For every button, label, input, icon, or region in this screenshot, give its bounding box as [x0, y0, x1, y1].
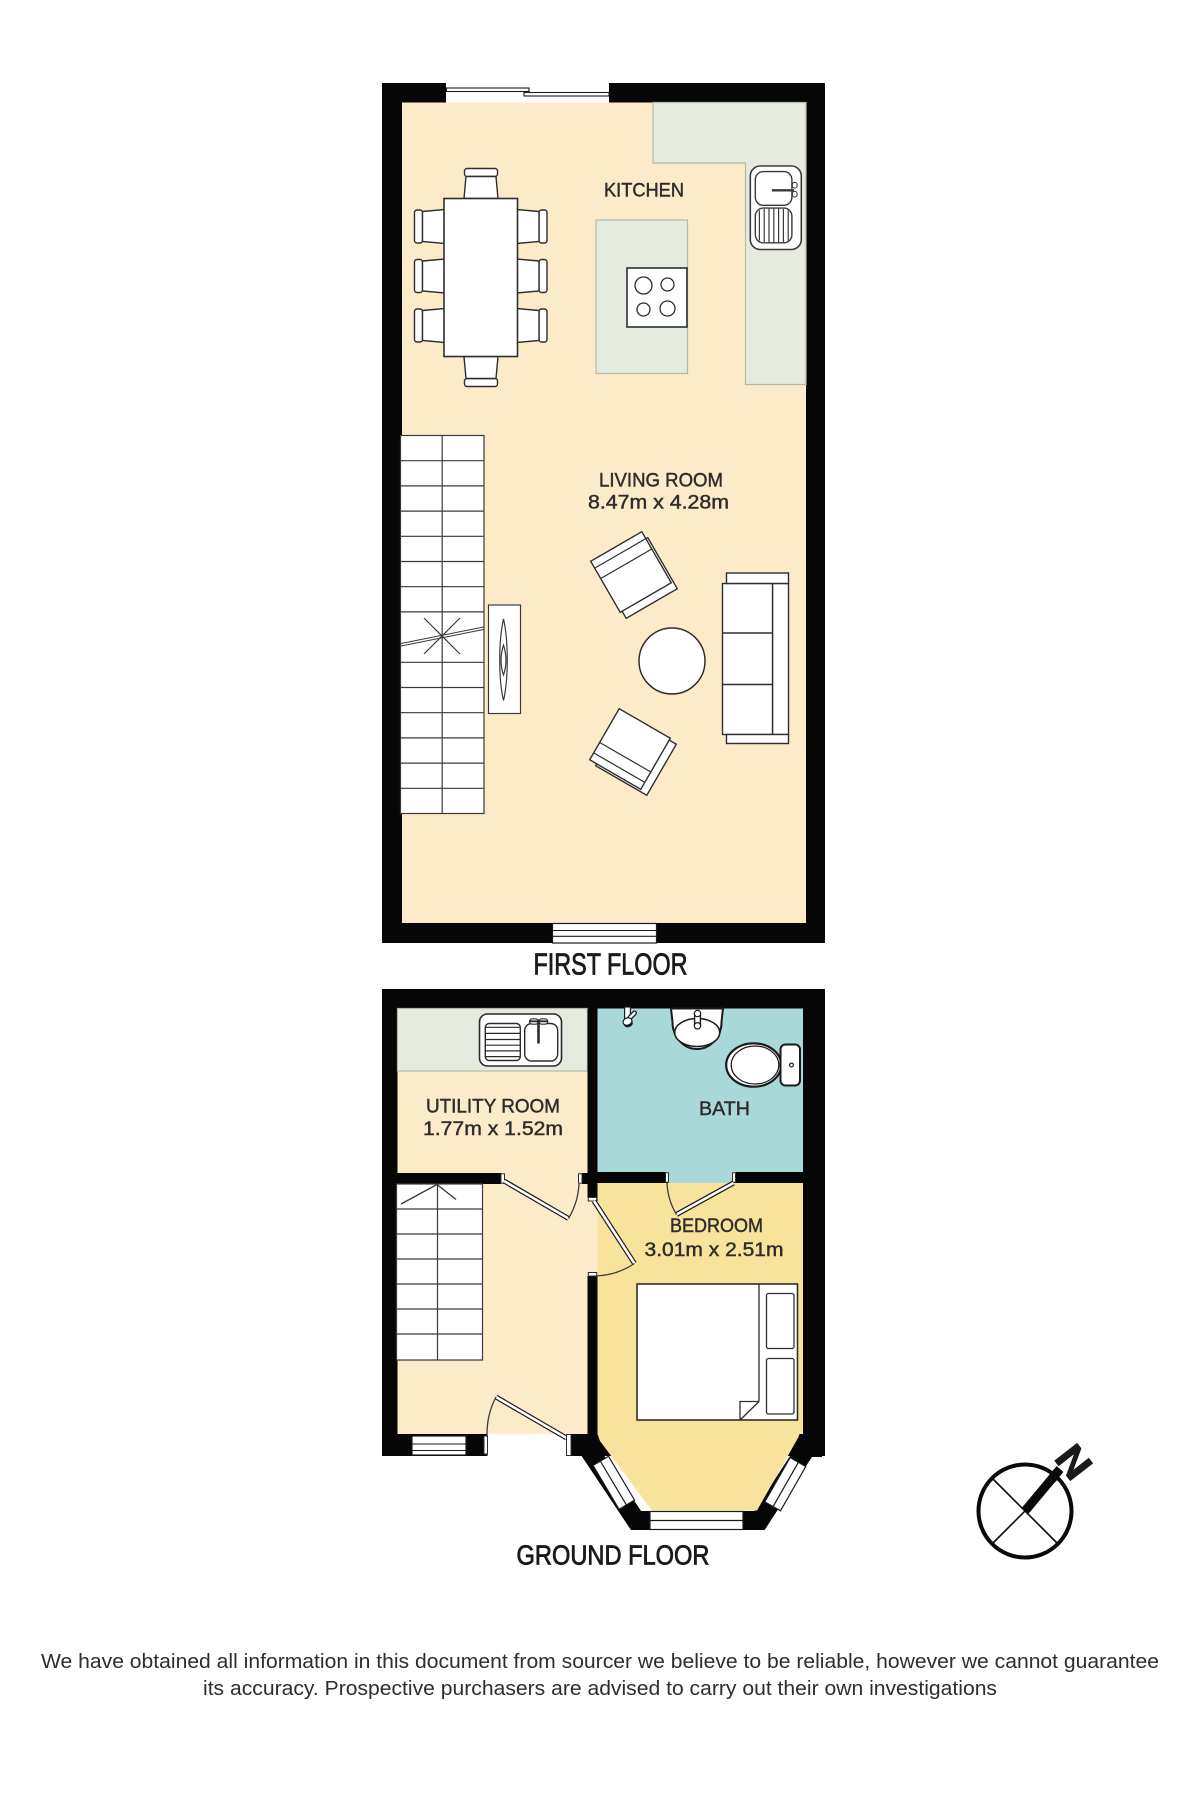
svg-text:We have obtained all informati: We have obtained all information in this…: [41, 1650, 1159, 1673]
svg-text:GROUND FLOOR: GROUND FLOOR: [517, 1540, 710, 1571]
svg-text:1.77m x 1.52m: 1.77m x 1.52m: [423, 1119, 563, 1140]
svg-text:its accuracy. Prospective purc: its accuracy. Prospective purchasers are…: [203, 1677, 997, 1700]
svg-text:BEDROOM: BEDROOM: [670, 1215, 763, 1237]
svg-text:8.47m x 4.28m: 8.47m x 4.28m: [588, 493, 729, 514]
svg-text:LIVING ROOM: LIVING ROOM: [599, 470, 723, 492]
svg-text:3.01m x 2.51m: 3.01m x 2.51m: [645, 1240, 784, 1261]
svg-text:UTILITY ROOM: UTILITY ROOM: [426, 1096, 560, 1118]
svg-text:BATH: BATH: [699, 1098, 750, 1120]
svg-text:KITCHEN: KITCHEN: [604, 180, 684, 202]
svg-text:FIRST FLOOR: FIRST FLOOR: [534, 948, 688, 982]
